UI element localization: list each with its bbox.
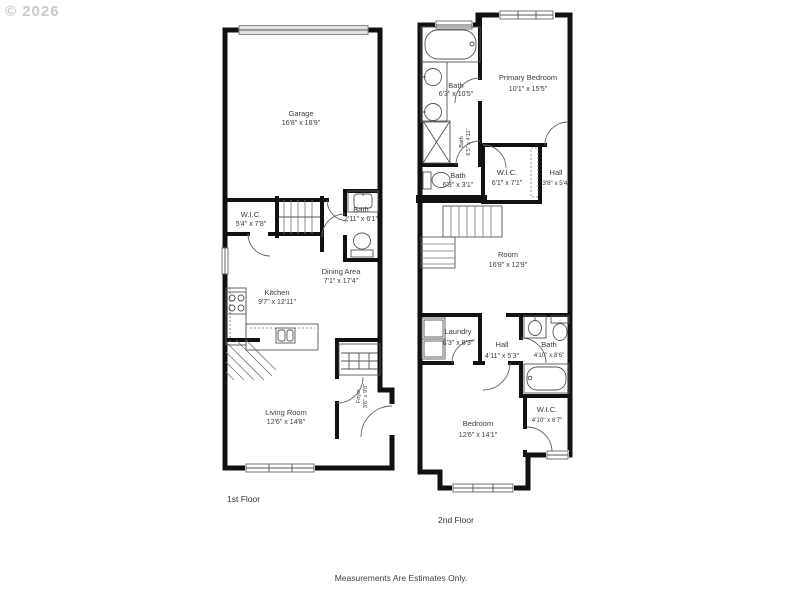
wic1-door (248, 234, 270, 256)
bath-lower-tub (524, 364, 569, 393)
bath-small-label: Bath (450, 171, 465, 180)
stove (226, 292, 246, 314)
bath1-top-wall (345, 191, 380, 200)
hall-upper-dims: 3'8" x 5'4" (542, 180, 569, 187)
foyer-label: Foyer (356, 389, 362, 403)
bath-lower-sink (524, 316, 546, 338)
bath1-dims: 2'11" x 6'1" (344, 216, 378, 223)
stairs-first-floor (279, 200, 320, 234)
hall-lower-dims: 4'11" x 5'3" (485, 353, 519, 360)
wic-upper-shelf (531, 148, 538, 197)
wic-lower-door (527, 427, 552, 452)
wic-upper-door (483, 145, 506, 168)
floorplan-canvas: Garage 16'8" x 18'9" W.I.C. 5'4" x 7'8" … (0, 0, 800, 600)
foyer-closet (339, 344, 380, 375)
bath1-toilet (351, 233, 373, 257)
bath-shower-dims: 6'5" x 4'11" (466, 128, 472, 155)
disclaimer-text: Measurements Are Estimates Only. (335, 573, 468, 583)
foyer-walls (337, 340, 380, 437)
wic-lower-label: W.I.C. (537, 405, 557, 414)
kitchen-label: Kitchen (264, 288, 289, 297)
garage-label: Garage (288, 109, 313, 118)
wic-upper-label: W.I.C. (497, 168, 517, 177)
bathtub-top (421, 27, 480, 62)
kitchen-sink (276, 328, 295, 343)
wic-upper-dims: 6'1" x 7'1" (492, 180, 523, 187)
second-floor-caption: 2nd Floor (438, 515, 474, 525)
bath-shower-label-group: Bath 6'5" x 4'11" (459, 128, 472, 155)
laundry-label: Laundry (444, 327, 471, 336)
kitchen-dims: 9'7" x 12'11" (258, 299, 296, 306)
bath2-label: Bath (448, 81, 463, 90)
first-floor-caption: 1st Floor (227, 494, 260, 504)
dining-dims: 7'1" x 17'4" (324, 278, 359, 285)
first-floor-plan: Garage 16'8" x 18'9" W.I.C. 5'4" x 7'8" … (220, 26, 397, 505)
primary-bedroom-door (545, 122, 568, 145)
laundry-dims: 6'3" x 8'3" (443, 340, 474, 347)
bath2-dims: 6'3" x 10'5" (439, 91, 474, 98)
wic1-label: W.I.C. (241, 210, 261, 219)
garage-dims: 16'8" x 18'9" (282, 120, 321, 127)
dining-label: Dining Area (322, 267, 362, 276)
bedroom-dims: 12'6" x 14'1" (459, 432, 498, 439)
shower (423, 121, 450, 163)
hall-lower-label: Hall (496, 340, 509, 349)
bath1-label: Bath (353, 205, 368, 214)
bedroom-door (483, 363, 510, 390)
primary-bedroom-label: Primary Bedroom (499, 73, 557, 82)
second-floor-plan: Bath 6'3" x 10'5" Primary Bedroom 10'1" … (420, 10, 570, 525)
hall-upper-label: Hall (550, 168, 563, 177)
bath-lower-label: Bath (541, 340, 556, 349)
room-dims: 16'8" x 12'9" (489, 262, 528, 269)
primary-bedroom-dims: 10'1" x 15'5" (509, 86, 548, 93)
room-label: Room (498, 250, 518, 259)
foyer-dims: 3'6" x 9'6" (363, 384, 369, 408)
bath-lower-dims: 4'10" x 8'6" (534, 352, 565, 359)
bath-small-dims: 6'3" x 3'1" (443, 182, 474, 189)
bath-shower-label: Bath (459, 136, 465, 148)
floorplan-page: © 2026 (0, 0, 800, 600)
washer-dryer (422, 318, 445, 359)
stairs-second-floor (421, 206, 502, 268)
bedroom-label: Bedroom (463, 419, 493, 428)
bath1-door (322, 214, 345, 237)
bath-lower-toilet (551, 316, 569, 341)
wic-lower-dims: 4'10" x 6'7" (532, 417, 563, 424)
winder-stairs (226, 340, 276, 380)
foyer-label-group: Foyer 3'6" x 9'6" (356, 384, 369, 408)
living-label: Living Room (265, 408, 307, 417)
living-dims: 12'6" x 14'8" (267, 419, 306, 426)
wic1-dims: 5'4" x 7'8" (236, 221, 267, 228)
